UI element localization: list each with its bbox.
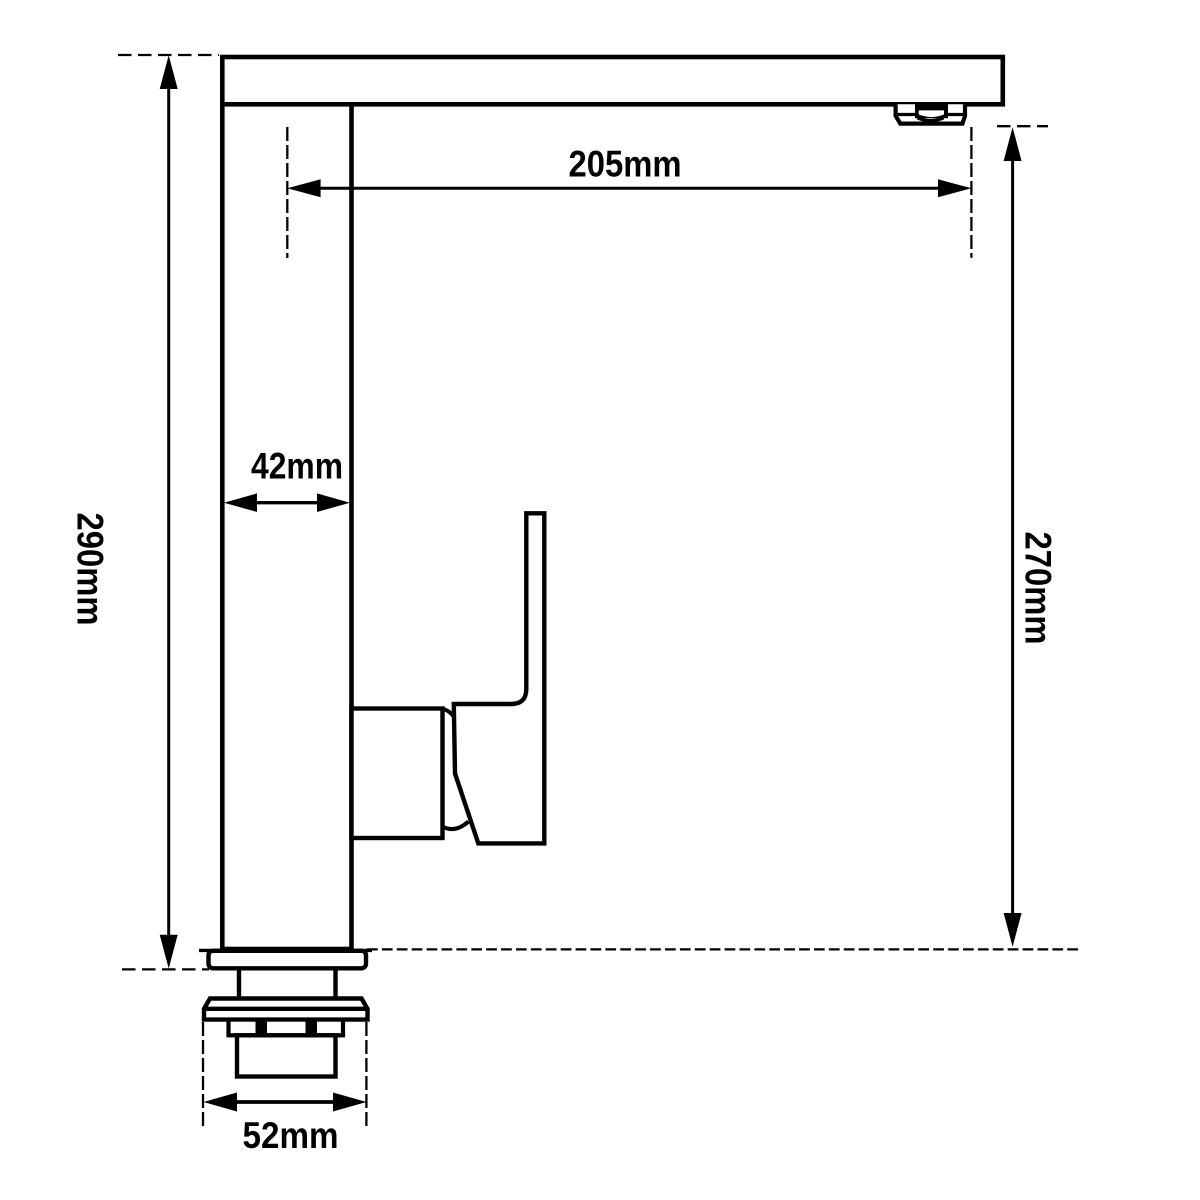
svg-text:290mm: 290mm	[70, 513, 111, 626]
svg-text:52mm: 52mm	[243, 1115, 339, 1156]
svg-text:205mm: 205mm	[569, 144, 682, 185]
svg-text:42mm: 42mm	[251, 445, 343, 486]
svg-text:270mm: 270mm	[1018, 532, 1059, 645]
